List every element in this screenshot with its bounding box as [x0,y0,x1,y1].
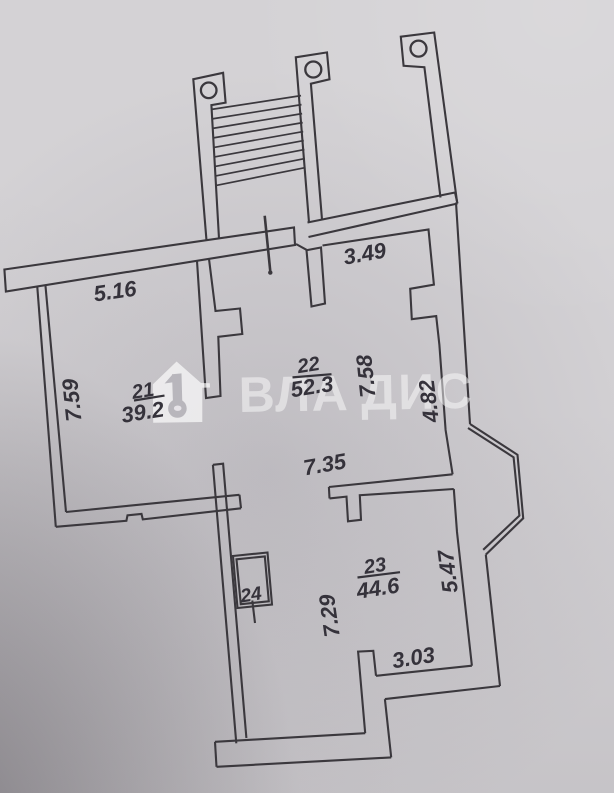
svg-text:7.58: 7.58 [351,353,380,399]
svg-text:24: 24 [238,583,264,607]
svg-text:7.59: 7.59 [57,377,86,423]
